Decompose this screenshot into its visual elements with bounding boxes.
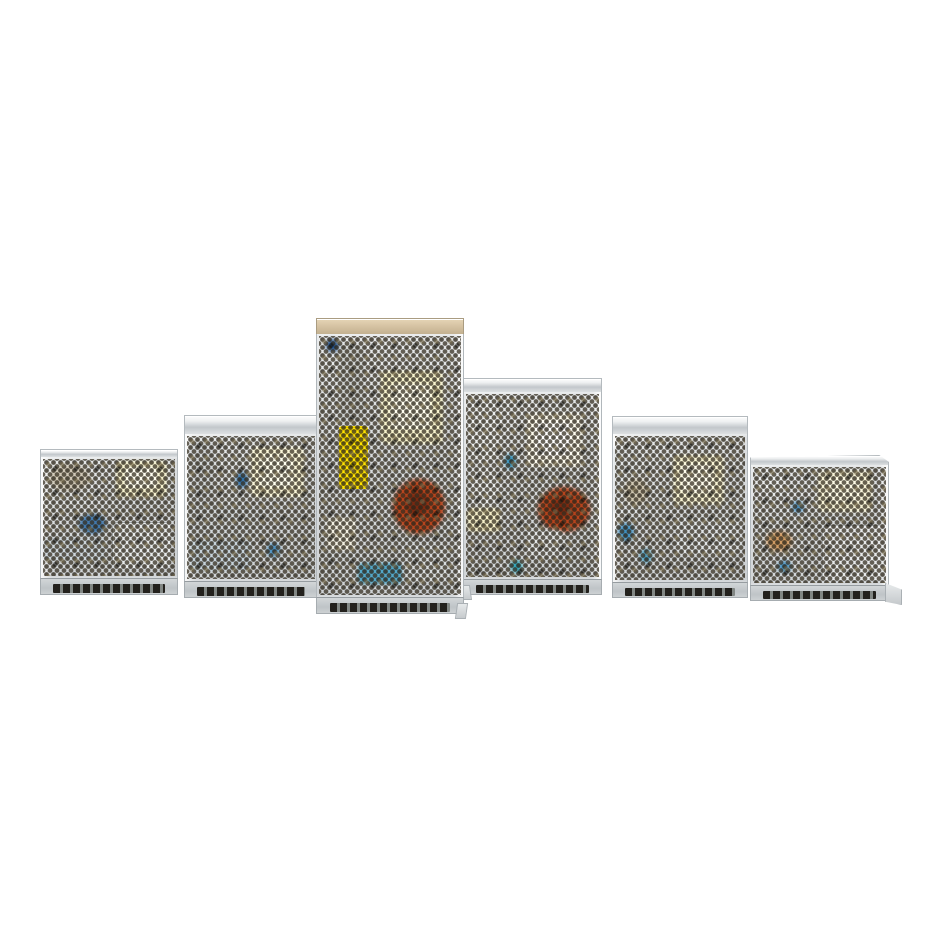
transformer-core-blob <box>390 384 431 429</box>
psu-unit-3 <box>316 318 464 614</box>
capacitor-blue-blob <box>236 472 248 488</box>
component-band-blob <box>44 537 107 561</box>
psu-unit-6 <box>750 455 889 601</box>
mounting-flange <box>885 583 902 605</box>
psu5-mesh-panel <box>612 434 748 582</box>
psu2-mesh-panel <box>184 434 318 581</box>
capacitor-blue-blob <box>618 523 634 541</box>
inner-panel-blob <box>676 518 739 554</box>
transformer-core-blob <box>681 464 713 494</box>
heatsink-blob <box>339 345 364 424</box>
psu3-top-cap <box>316 318 464 334</box>
transformer-core-blob <box>259 455 293 487</box>
psu4-mesh-panel <box>463 392 602 579</box>
psu3-terminal-block <box>316 597 464 614</box>
component-white-blob <box>327 518 356 550</box>
psu6-top-cap <box>750 455 889 465</box>
psu4-top-cap <box>463 378 602 392</box>
psu6-terminal-block <box>750 585 889 601</box>
component-band-blob <box>190 505 261 540</box>
capacitor-pale-blob <box>468 399 501 463</box>
psu3-mesh-panel <box>316 334 464 597</box>
capacitor-blue-blob <box>326 339 339 352</box>
psu5-top-cap <box>612 416 748 434</box>
capacitor-blue-blob <box>79 514 106 535</box>
psu-unit-5 <box>612 416 748 598</box>
capacitor-tan-blob <box>766 531 792 551</box>
capacitor-blue-blob <box>267 543 280 558</box>
psu-unit-1 <box>40 449 178 595</box>
component-tint-blob <box>624 478 648 505</box>
inner-panel-blob <box>527 530 563 558</box>
mounting-foot <box>455 603 468 619</box>
psu2-top-cap <box>184 415 318 434</box>
inner-panel-blob <box>822 525 882 580</box>
psu1-top-cap <box>40 449 178 457</box>
psu-unit-2 <box>184 415 318 598</box>
product-photo <box>0 0 930 930</box>
capacitor-blue-blob <box>778 561 790 572</box>
component-tint-blob <box>49 464 90 491</box>
psu6-mesh-panel <box>750 465 889 585</box>
psu2-terminal-block <box>184 581 318 598</box>
capacitor-pale-blob <box>471 467 498 508</box>
spec-label-sticker <box>339 426 368 489</box>
capacitor-teal-blob <box>511 560 522 573</box>
transformer-core-blob <box>535 422 571 456</box>
psu5-terminal-block <box>612 582 748 598</box>
capacitor-blue-blob <box>640 549 652 562</box>
psu-unit-4 <box>463 378 602 595</box>
psu4-terminal-block <box>463 579 602 595</box>
capacitor-blue-blob <box>358 563 402 584</box>
inner-panel-blob <box>405 544 449 581</box>
transformer-core-blob <box>125 467 156 489</box>
inner-panel-blob <box>112 522 170 568</box>
psu1-mesh-panel <box>40 457 178 578</box>
psu1-terminal-block <box>40 578 178 595</box>
component-white-blob <box>762 475 787 494</box>
capacitor-blue-blob <box>792 501 804 513</box>
transformer-core-blob <box>826 477 860 502</box>
component-cream-blob <box>467 508 500 532</box>
component-band-blob <box>190 540 251 571</box>
capacitor-blue-blob <box>505 454 516 469</box>
